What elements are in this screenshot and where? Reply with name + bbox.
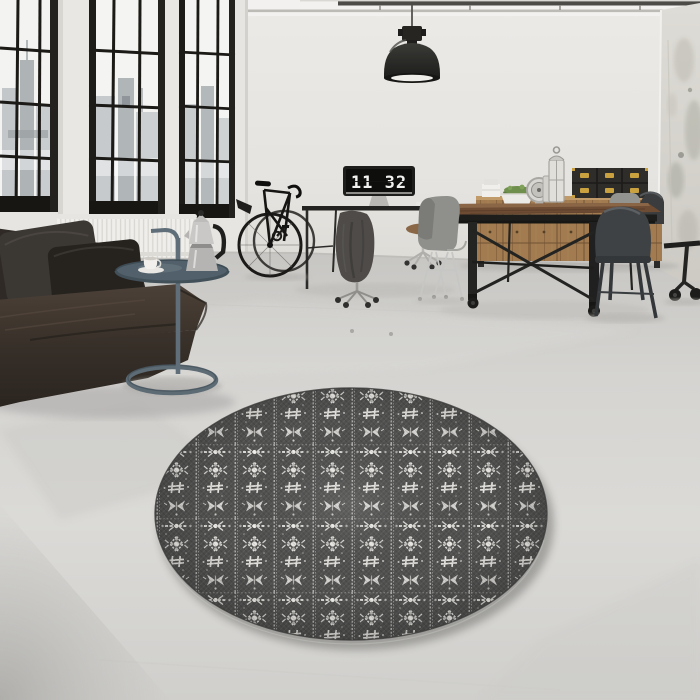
wall-corner	[245, 0, 248, 254]
loft-room-photo: 11 32	[0, 0, 700, 700]
scene-canvas: 11 32	[0, 0, 700, 700]
window-bay-1	[0, 0, 59, 212]
clock-display: 11 32	[351, 173, 407, 193]
window-bay-3	[179, 0, 235, 218]
white-books	[482, 179, 500, 197]
round-rug	[155, 388, 554, 650]
ceiling-pipes	[246, 0, 700, 16]
concrete-column	[658, 3, 700, 292]
window-bay-2	[89, 0, 165, 216]
window-pillar	[165, 0, 179, 220]
storage-trunks	[572, 168, 648, 198]
